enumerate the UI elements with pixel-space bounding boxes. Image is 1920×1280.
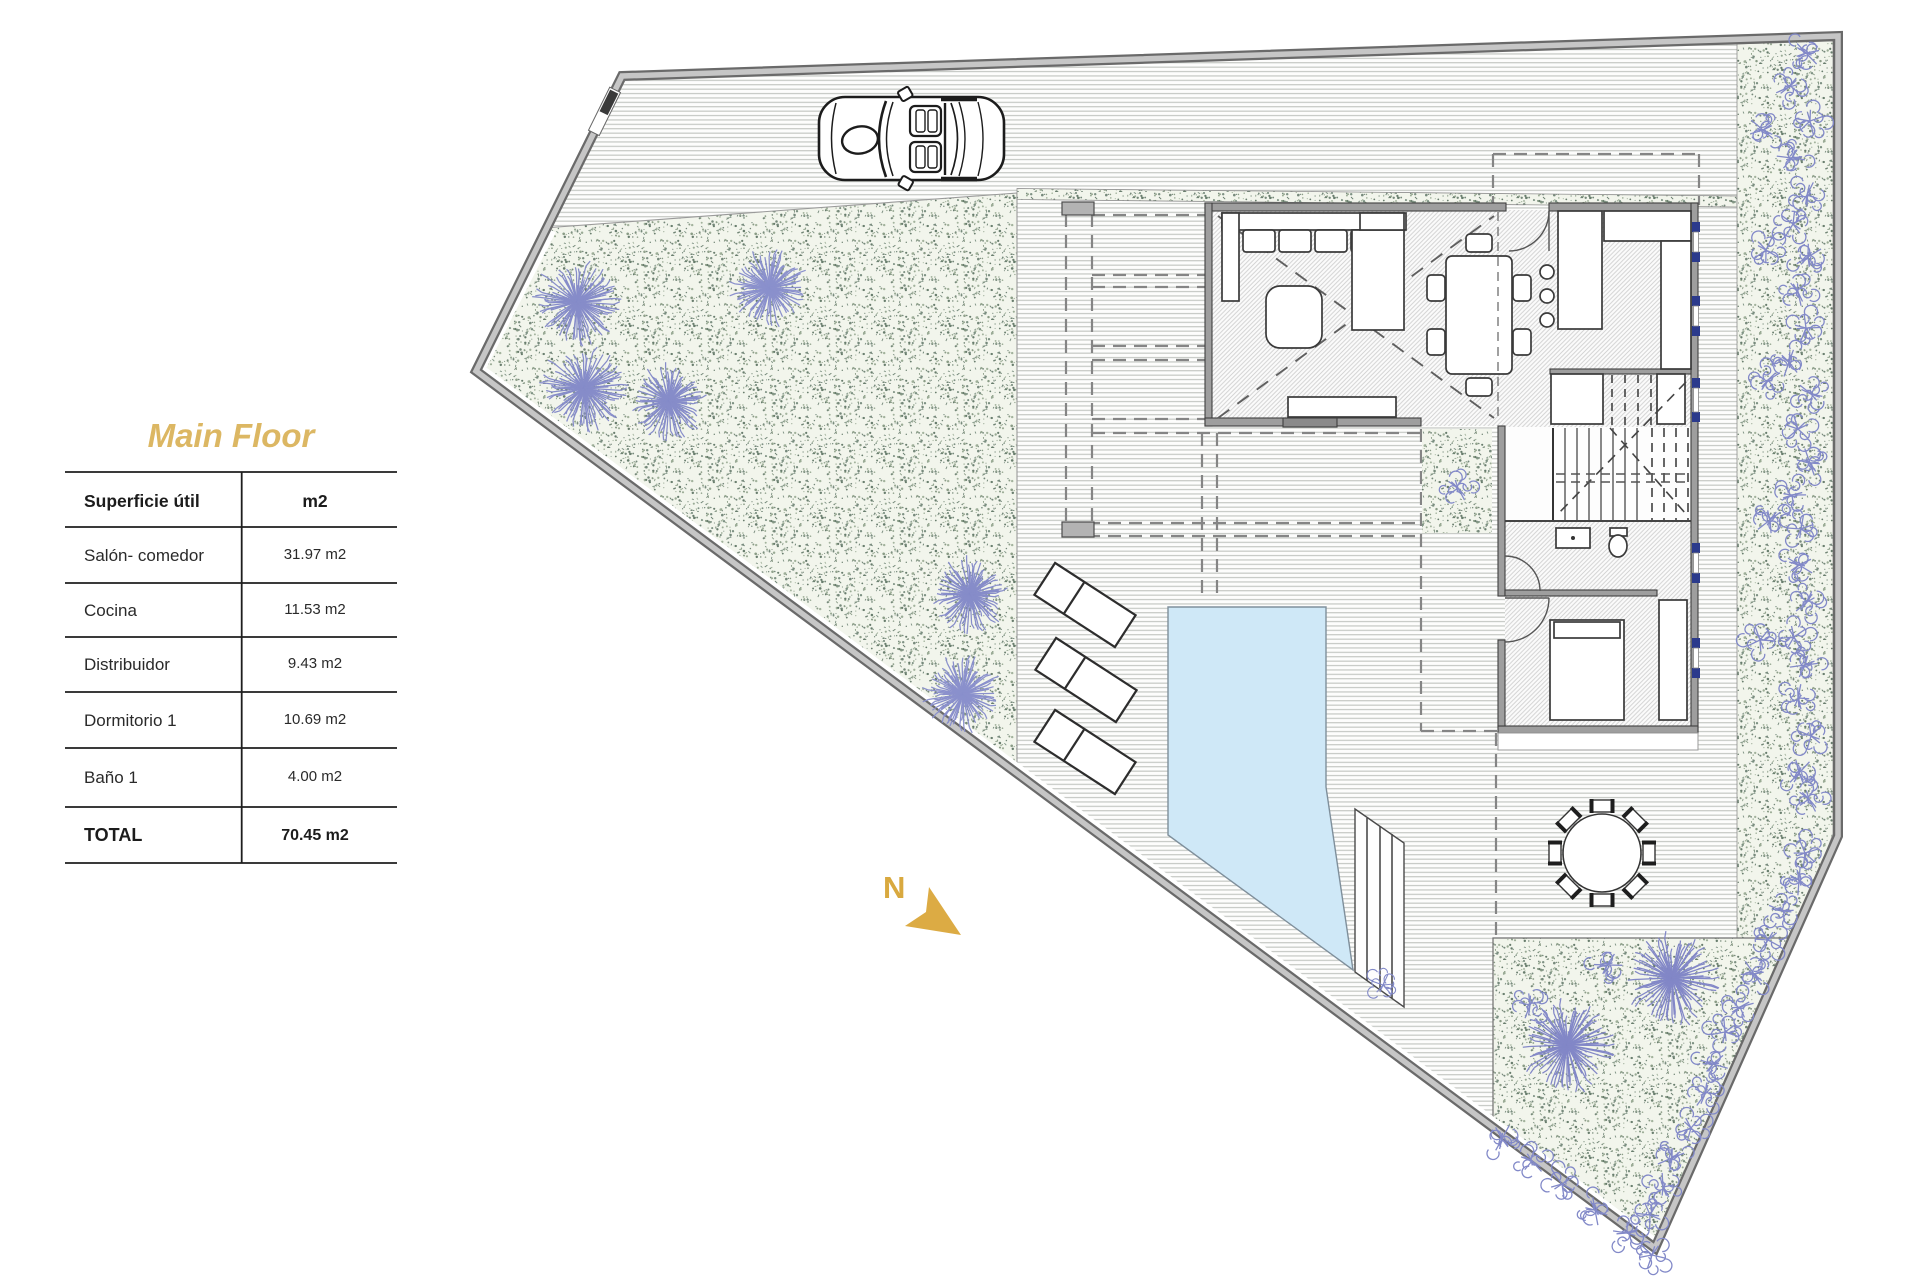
svg-text:m2: m2 <box>302 491 328 511</box>
svg-text:Distribuidor: Distribuidor <box>84 655 170 674</box>
svg-text:Superficie útil: Superficie útil <box>84 491 200 511</box>
svg-text:4.00 m2: 4.00 m2 <box>288 768 342 785</box>
svg-text:10.69 m2: 10.69 m2 <box>284 711 347 728</box>
svg-text:N: N <box>883 870 905 905</box>
svg-text:70.45 m2: 70.45 m2 <box>281 827 349 844</box>
svg-text:9.43 m2: 9.43 m2 <box>288 655 342 672</box>
svg-text:Salón- comedor: Salón- comedor <box>84 546 204 565</box>
svg-text:31.97 m2: 31.97 m2 <box>284 546 347 563</box>
svg-text:Baño 1: Baño 1 <box>84 768 138 787</box>
svg-text:11.53 m2: 11.53 m2 <box>284 601 345 618</box>
svg-text:Main Floor: Main Floor <box>148 417 317 454</box>
svg-text:Cocina: Cocina <box>84 601 137 620</box>
svg-text:Dormitorio 1: Dormitorio 1 <box>84 711 177 730</box>
svg-text:TOTAL: TOTAL <box>84 825 142 845</box>
